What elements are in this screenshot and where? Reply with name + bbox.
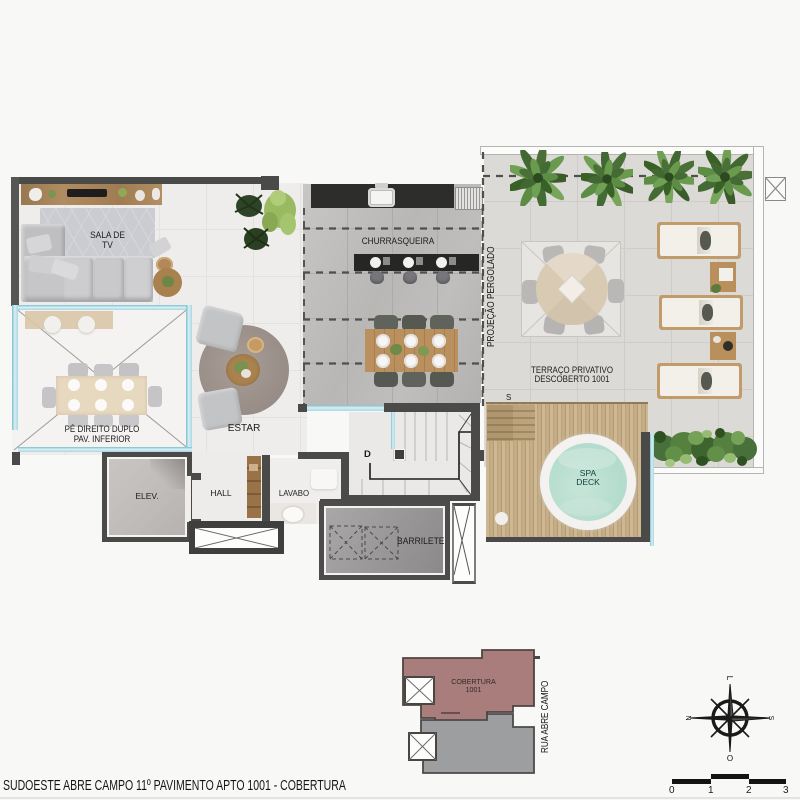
svg-text:L: L xyxy=(725,676,734,681)
svg-text:N: N xyxy=(684,715,691,720)
svg-text:O: O xyxy=(727,754,733,763)
svg-text:S: S xyxy=(767,716,774,721)
